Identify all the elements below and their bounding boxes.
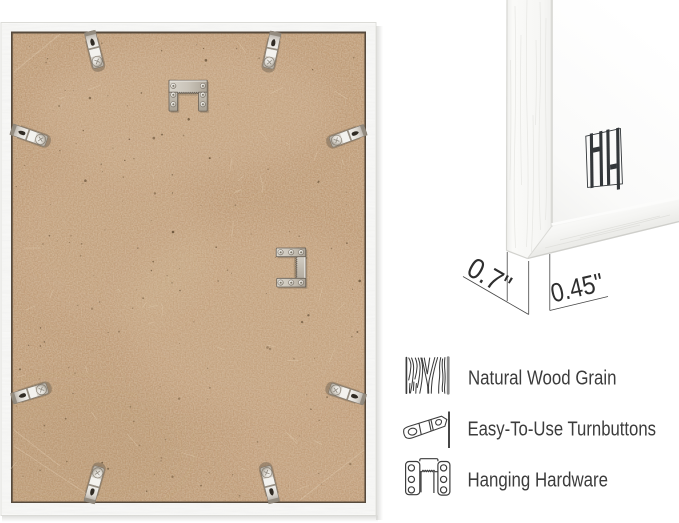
- svg-text:Hanging Hardware: Hanging Hardware: [468, 470, 609, 492]
- svg-text:Natural Wood Grain: Natural Wood Grain: [468, 368, 617, 390]
- svg-text:Easy-To-Use Turnbuttons: Easy-To-Use Turnbuttons: [468, 419, 657, 441]
